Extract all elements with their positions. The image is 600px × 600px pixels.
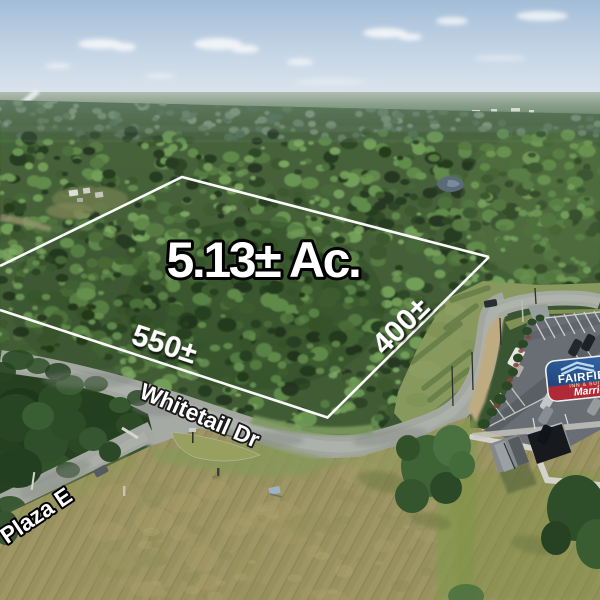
svg-text:5.13± Ac.: 5.13± Ac. — [167, 232, 360, 288]
